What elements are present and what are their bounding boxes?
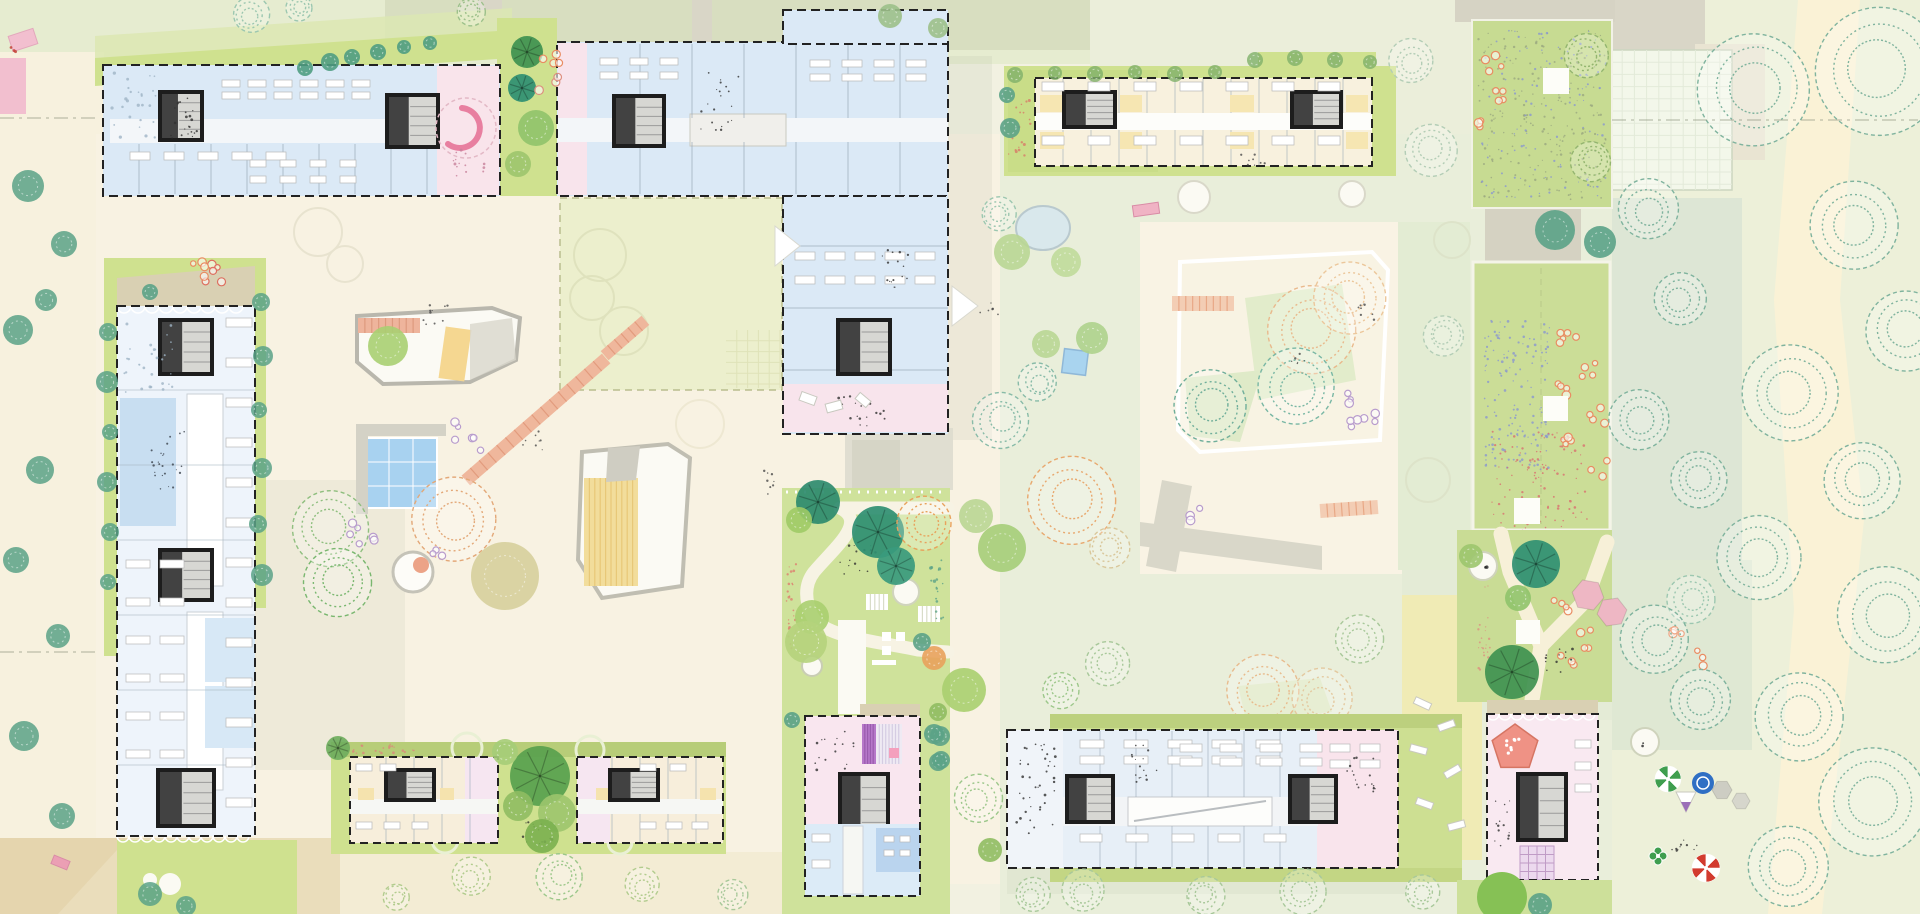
- blue-flower-speckle: [1492, 448, 1495, 451]
- meadow-speckle: [1518, 95, 1520, 97]
- scatter-marks: [1558, 654, 1560, 656]
- scatter-marks: [843, 573, 845, 575]
- meadow-speckle: [1579, 117, 1581, 119]
- meadow-speckle: [1551, 125, 1552, 126]
- shrub-dots: [936, 578, 939, 581]
- flower-dots: [1487, 585, 1488, 586]
- purple-flowers: [348, 519, 356, 527]
- blue-flower-speckle: [1507, 320, 1510, 323]
- red-flower-speckle: [1499, 452, 1501, 454]
- desks: [1226, 82, 1248, 91]
- flower-cluster: [200, 272, 208, 280]
- meadow-speckle: [1584, 139, 1585, 140]
- blue-flower-speckle: [1509, 337, 1511, 339]
- scatter-marks: [1039, 806, 1041, 808]
- flower-cluster: [1563, 441, 1568, 446]
- meadow-speckle: [1557, 166, 1559, 168]
- footprints: [429, 304, 431, 306]
- meadow-speckle: [1597, 186, 1599, 188]
- blue-flower-speckle: [1540, 407, 1542, 409]
- blue-flower-speckle: [1519, 368, 1521, 370]
- scatter-marks: [1035, 743, 1037, 745]
- desks: [1330, 744, 1350, 752]
- scatter-marks: [1022, 797, 1024, 799]
- lounge-dots: [151, 353, 153, 355]
- tree: [1287, 50, 1303, 66]
- flower-cluster: [209, 267, 216, 274]
- meadow-speckle: [1511, 196, 1513, 198]
- flower-cluster: [535, 86, 544, 95]
- yellow-room: [1230, 95, 1254, 112]
- tree: [96, 371, 118, 393]
- meadow-speckle: [1547, 133, 1548, 134]
- lounge-dots: [161, 358, 163, 360]
- red-flower-speckle: [1546, 468, 1548, 470]
- red-flower-speckle: [1534, 460, 1536, 462]
- tree: [102, 424, 118, 440]
- lounge-dots: [129, 348, 131, 350]
- meadow-speckle: [1512, 133, 1513, 134]
- flower-dots: [1477, 628, 1479, 630]
- footprints: [766, 480, 768, 482]
- blue-flower-speckle: [1517, 429, 1519, 431]
- blue-flower-speckle: [1484, 355, 1486, 357]
- scatter-marks: [848, 565, 849, 566]
- desks: [274, 80, 292, 87]
- meadow-speckle: [1478, 85, 1480, 87]
- meadow-speckle: [1542, 37, 1544, 39]
- scatter-marks: [1507, 837, 1509, 839]
- footprints: [1248, 160, 1250, 162]
- building-shadow: [948, 56, 992, 440]
- tree: [999, 87, 1015, 103]
- red-flower-speckle: [1544, 437, 1545, 438]
- blue-flower-speckle: [1514, 404, 1516, 406]
- red-flower-speckle: [1511, 475, 1513, 477]
- desks: [1180, 136, 1202, 145]
- meadow-speckle: [1587, 184, 1590, 187]
- flower-cluster: [1486, 68, 1493, 75]
- meadow-speckle: [1513, 77, 1515, 79]
- tree: [251, 564, 273, 586]
- desks: [874, 60, 894, 67]
- desks: [384, 822, 400, 829]
- blue-flower-speckle: [1512, 359, 1515, 362]
- purple-flowers: [438, 552, 445, 559]
- meadow-speckle: [1600, 114, 1602, 116]
- scatter-marks: [174, 107, 175, 108]
- meadow-speckle: [1488, 96, 1490, 98]
- blue-flower-speckle: [1494, 465, 1496, 467]
- desks: [280, 176, 296, 183]
- red-flower-speckle: [1583, 444, 1586, 447]
- red-flower-speckle: [1554, 470, 1556, 472]
- blue-flower-speckle: [1533, 464, 1535, 466]
- desks: [164, 152, 184, 160]
- scatter-marks: [886, 279, 888, 281]
- tree: [928, 18, 948, 38]
- blue-flower-speckle: [1518, 454, 1520, 456]
- meadow-speckle: [1583, 100, 1584, 101]
- tree: [1076, 322, 1108, 354]
- desks: [640, 822, 656, 829]
- blue-flower-speckle: [1517, 341, 1519, 343]
- scatter-marks: [1571, 648, 1574, 651]
- skylight: [1543, 68, 1569, 94]
- flower-dots: [789, 566, 790, 567]
- meadow-speckle: [1550, 151, 1552, 153]
- desks: [1272, 136, 1294, 145]
- shrub-dots: [936, 587, 938, 589]
- stair-core: [162, 552, 182, 598]
- stair-core: [162, 322, 182, 372]
- footprints: [763, 470, 765, 472]
- scatter-marks: [1020, 760, 1021, 761]
- pink-dots: [483, 163, 486, 166]
- flower-dots: [1485, 648, 1486, 649]
- meadow-speckle: [1543, 177, 1545, 179]
- chair-marks: [1642, 742, 1644, 744]
- meadow-speckle: [1543, 116, 1545, 118]
- desks: [126, 674, 150, 682]
- blue-flower-speckle: [1506, 371, 1508, 373]
- stair-core: [612, 772, 630, 798]
- scatter-marks: [837, 397, 840, 400]
- meadow-speckle: [1488, 196, 1490, 198]
- footprints: [537, 430, 539, 432]
- footprints: [1252, 158, 1254, 160]
- purple-flowers: [477, 447, 483, 453]
- flower-dots: [1021, 141, 1023, 143]
- scatter-marks: [189, 115, 192, 118]
- flower-dots: [1015, 106, 1017, 108]
- scatter-marks: [179, 472, 181, 474]
- meadow-speckle: [1560, 139, 1561, 140]
- flower-cluster: [1500, 88, 1506, 94]
- desks: [226, 398, 252, 407]
- atrium: [690, 114, 786, 146]
- lounge-dots: [148, 104, 151, 107]
- tree: [252, 293, 270, 311]
- desks: [1180, 744, 1202, 752]
- lounge-dots: [138, 91, 140, 93]
- blue-flower-speckle: [1527, 380, 1528, 381]
- meadow-speckle: [1568, 194, 1570, 196]
- meadow-speckle: [1500, 95, 1501, 96]
- blue-flower-speckle: [1524, 453, 1526, 455]
- desks: [660, 58, 678, 65]
- footprints: [432, 310, 433, 311]
- meadow-speckle: [1492, 115, 1494, 117]
- red-flower-speckle: [1537, 458, 1539, 460]
- red-flower-speckle: [1507, 467, 1509, 469]
- tree: [138, 882, 162, 906]
- scatter-marks: [1156, 770, 1158, 772]
- scatter-marks: [853, 746, 855, 748]
- footprints: [1360, 307, 1362, 309]
- coral-pavilion: [1505, 739, 1508, 742]
- scatter-marks: [154, 472, 155, 473]
- desks: [352, 80, 370, 87]
- blue-flower-speckle: [1526, 352, 1528, 354]
- scatter-marks: [1046, 753, 1048, 755]
- scatter-marks: [154, 475, 156, 477]
- blue-flower-speckle: [1532, 433, 1535, 436]
- meadow-speckle: [1600, 181, 1602, 183]
- footprints: [1264, 162, 1266, 164]
- red-flower-speckle: [1562, 520, 1564, 522]
- scatter-marks: [1683, 840, 1684, 841]
- tree-shadow-band: [1612, 198, 1742, 570]
- scatter-marks: [1054, 790, 1056, 792]
- meadow-speckle: [1564, 103, 1566, 105]
- purple-flowers: [370, 536, 378, 544]
- tree: [12, 170, 44, 202]
- scatter-marks: [1021, 775, 1024, 778]
- blue-flower-speckle: [1495, 334, 1498, 337]
- flower-dots: [789, 595, 790, 596]
- scatter-marks: [855, 550, 857, 552]
- flower-cluster: [191, 261, 196, 266]
- blue-flower-speckle: [1509, 367, 1510, 368]
- classroom-tables: [855, 252, 875, 260]
- coral-pavilion: [1507, 751, 1510, 754]
- meadow-speckle: [1567, 125, 1568, 126]
- blue-flower-speckle: [1498, 438, 1500, 440]
- meadow-speckle: [1487, 33, 1488, 34]
- scatter-marks: [1054, 765, 1056, 767]
- yellow-room: [440, 788, 454, 800]
- blue-flower-speckle: [1522, 343, 1523, 344]
- flower-cluster: [1581, 645, 1588, 652]
- scatter-marks: [834, 743, 836, 745]
- building2-north-wing: [783, 10, 948, 44]
- lounge-dots: [154, 136, 156, 138]
- desks: [1134, 82, 1156, 91]
- desks: [1088, 136, 1110, 145]
- classroom-tables: [795, 252, 815, 260]
- scatter-marks: [1555, 661, 1557, 663]
- shrub-dots: [933, 580, 936, 583]
- tree-sketch: [1280, 869, 1326, 914]
- shrub-dots: [936, 600, 939, 603]
- scatter-marks: [824, 739, 825, 740]
- meadow-speckle: [1493, 132, 1495, 134]
- scatter-marks: [192, 110, 193, 111]
- pink-dots: [453, 160, 454, 161]
- desks: [812, 860, 830, 868]
- flower-cluster: [1564, 433, 1572, 441]
- lounge-dots: [110, 106, 113, 109]
- skylight: [1514, 498, 1540, 524]
- blue-flower-speckle: [1527, 345, 1530, 348]
- tree-sketch: [536, 854, 582, 900]
- blue-flower-speckle: [1491, 443, 1494, 446]
- footprints: [442, 320, 444, 322]
- tree-sketch: [1258, 348, 1334, 424]
- red-marker: [10, 46, 13, 49]
- blue-flower-speckle: [1488, 444, 1490, 446]
- meadow-speckle: [1520, 125, 1522, 127]
- meadow-speckle: [1543, 128, 1545, 130]
- red-flower-speckle: [1504, 451, 1506, 453]
- blue-flower-speckle: [1544, 421, 1547, 424]
- blue-flower-speckle: [1521, 458, 1524, 461]
- lounge-dots: [152, 121, 154, 123]
- scatter-marks: [891, 281, 892, 282]
- blue-flower-speckle: [1511, 423, 1513, 425]
- lounge-dots: [126, 78, 129, 81]
- meadow-speckle: [1520, 178, 1521, 179]
- blue-flower-speckle: [1536, 444, 1539, 447]
- scatter-marks: [846, 764, 847, 765]
- lounge-dots: [130, 91, 132, 93]
- blue-flower-speckle: [1547, 363, 1548, 364]
- red-flower-speckle: [1521, 491, 1523, 493]
- purple-flowers: [430, 551, 436, 557]
- tree: [397, 40, 411, 54]
- scatter-marks: [906, 278, 908, 280]
- desks: [226, 638, 252, 647]
- tree: [1167, 66, 1183, 82]
- scatter-marks: [894, 287, 895, 288]
- tree-sketch: [286, 0, 312, 21]
- scatter-marks: [1494, 840, 1495, 841]
- blue-flower-speckle: [1516, 433, 1518, 435]
- scatter-marks: [183, 431, 185, 433]
- purple-flowers: [1186, 516, 1195, 525]
- desks: [380, 764, 396, 771]
- blue-flower-speckle: [1485, 446, 1487, 448]
- flower-dots: [413, 750, 415, 752]
- meadow-speckle: [1514, 92, 1516, 94]
- desks: [310, 176, 326, 183]
- scatter-marks: [1135, 759, 1136, 760]
- meadow-speckle: [1502, 113, 1503, 114]
- flower-cluster: [1573, 334, 1580, 341]
- classroom-tables: [885, 252, 905, 260]
- flower-dots: [1485, 626, 1486, 627]
- scatter-marks: [857, 416, 858, 417]
- meadow-speckle: [1531, 84, 1533, 86]
- red-flower-speckle: [1580, 454, 1581, 455]
- purple-flowers: [1345, 390, 1351, 396]
- blue-flower-speckle: [1485, 459, 1487, 461]
- stair-core: [389, 97, 409, 145]
- scatter-marks: [901, 276, 903, 278]
- meadow-speckle: [1521, 145, 1523, 147]
- flower-cluster: [1699, 662, 1707, 670]
- tree: [492, 739, 518, 765]
- tree: [1128, 65, 1142, 79]
- blue-flower-speckle: [1503, 354, 1504, 355]
- classroom-tables: [825, 252, 845, 260]
- lounge-dots: [140, 388, 143, 391]
- flower-cluster: [1558, 383, 1564, 389]
- desks: [160, 674, 184, 682]
- meadow-speckle: [1604, 138, 1606, 140]
- desks: [274, 92, 292, 99]
- meadow-speckle: [1593, 114, 1595, 116]
- scatter-marks: [843, 396, 845, 398]
- lounge-dots: [141, 104, 144, 107]
- flower-cluster: [1491, 51, 1499, 59]
- scatter-marks: [160, 453, 161, 454]
- scatter-marks: [1043, 744, 1045, 746]
- red-flower-speckle: [1543, 466, 1545, 468]
- blue-flower-speckle: [1546, 436, 1549, 439]
- atrium: [843, 826, 863, 894]
- red-flower-speckle: [1502, 513, 1504, 515]
- stair-core: [1294, 94, 1313, 125]
- stone-path: [1610, 0, 1705, 50]
- flower-cluster: [1493, 88, 1499, 94]
- lounge-dots: [155, 349, 157, 351]
- footprints: [1360, 314, 1362, 316]
- desks: [666, 822, 682, 829]
- scatter-marks: [181, 134, 183, 136]
- scatter-marks: [1355, 757, 1357, 759]
- blue-flower-speckle: [1491, 436, 1493, 438]
- desks: [226, 718, 252, 727]
- meadow-speckle: [1564, 187, 1566, 189]
- desks: [1318, 82, 1340, 91]
- woodland-tree: [1654, 273, 1706, 325]
- blue-flower-speckle: [1544, 379, 1546, 381]
- blue-flower-speckle: [1529, 464, 1531, 466]
- flower-cluster: [1592, 361, 1597, 366]
- red-flower-speckle: [1538, 495, 1541, 498]
- flower-dots: [375, 750, 377, 752]
- scatter-marks: [151, 461, 153, 463]
- meadow-speckle: [1525, 100, 1527, 102]
- scatter-marks: [1039, 785, 1041, 787]
- scatter-marks: [192, 136, 193, 137]
- meadow-speckle: [1482, 89, 1484, 91]
- lounge-dots: [171, 349, 172, 350]
- purple-flowers: [1197, 505, 1203, 511]
- scatter-marks: [1560, 671, 1562, 673]
- tree: [525, 819, 559, 853]
- flower-dots: [1485, 630, 1486, 631]
- flower-cluster: [1588, 466, 1595, 473]
- meadow-speckle: [1524, 184, 1525, 185]
- meadow-speckle: [1501, 116, 1503, 118]
- meadow-speckle: [1521, 78, 1523, 80]
- stair-core: [1292, 778, 1310, 820]
- meadow-speckle: [1569, 152, 1571, 154]
- red-flower-speckle: [1492, 431, 1494, 433]
- flower-cluster: [554, 73, 562, 81]
- flower-dots: [356, 752, 357, 753]
- flower-cluster: [552, 50, 560, 58]
- scatter-marks: [1143, 770, 1144, 771]
- flower-dots: [404, 751, 406, 753]
- blue-flower-speckle: [1508, 351, 1509, 352]
- scatter-marks: [815, 769, 818, 772]
- flower-dots: [388, 745, 391, 748]
- footprints: [434, 323, 436, 325]
- meadow-speckle: [1546, 60, 1548, 62]
- pink-block: [0, 58, 26, 114]
- blue-flower-speckle: [1535, 350, 1537, 352]
- lounge-dots: [125, 391, 127, 393]
- desks: [326, 92, 344, 99]
- scatter-marks: [1024, 811, 1026, 813]
- scatter-marks: [1053, 748, 1055, 750]
- meadow-speckle: [1523, 118, 1525, 120]
- yellow-room: [596, 788, 610, 800]
